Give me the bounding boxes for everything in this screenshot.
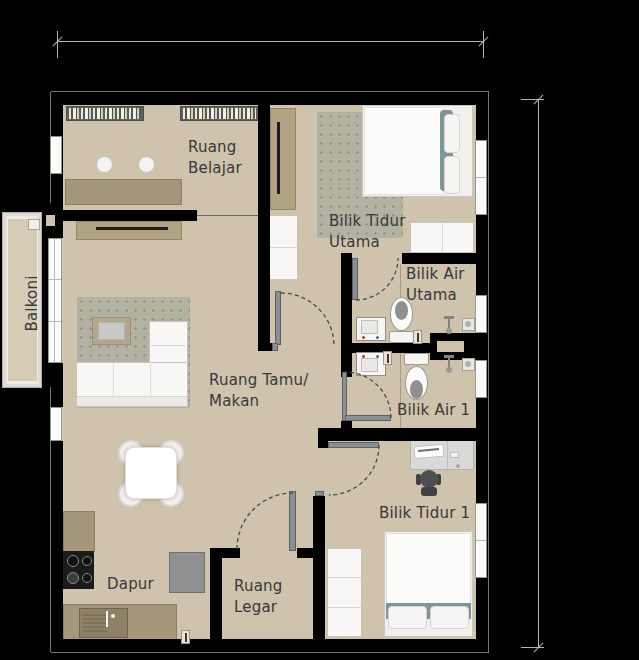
coffee-table-top (98, 322, 125, 340)
duct-shaft-inset (437, 341, 464, 352)
balcony-drain (28, 219, 40, 230)
bedroom1-door (328, 442, 379, 448)
pillow (444, 156, 460, 194)
balcony-sliding-door (48, 238, 62, 363)
burner-icon (67, 572, 79, 584)
label-line: Ruang Tamu/ (209, 370, 309, 391)
wall-study-south (61, 210, 197, 221)
room-label-study: Ruang Belajar (188, 137, 242, 179)
label-line: Utama (329, 232, 406, 253)
entrance-door (289, 491, 296, 551)
office-chair-back (421, 487, 437, 496)
tv-icon (277, 122, 280, 194)
label-line: Ruang (234, 576, 282, 597)
sink-basin (83, 612, 107, 634)
wall-bottom (51, 639, 488, 652)
pillow (388, 606, 427, 629)
room-label-bathroom1: Bilik Air 1 (397, 400, 470, 421)
study-desk (65, 179, 182, 205)
dimension-tick-right-top (521, 99, 544, 100)
wall-masterbath-north (402, 253, 476, 264)
room-label-master-bathroom: Bilik Air Utama (406, 264, 465, 306)
label-line: Belajar (188, 158, 242, 179)
valve-icon (413, 330, 422, 344)
label-line: Ruang (188, 137, 242, 158)
wall-stub (318, 428, 328, 448)
door-jamb (272, 343, 278, 351)
cold-tap-dot (376, 336, 379, 339)
pillar-inset (46, 215, 55, 226)
desk-dot (456, 464, 460, 468)
shower-head-icon (446, 328, 452, 334)
partition-line (197, 215, 259, 216)
wall-foyer-top (210, 548, 240, 558)
burner-icon (67, 555, 79, 567)
window-mullion (476, 540, 486, 541)
sofa-chaise-line (152, 345, 185, 346)
burner-icon (82, 556, 92, 566)
label-line: Utama (406, 285, 465, 306)
pillow (444, 114, 460, 153)
tv-console (76, 221, 182, 240)
wall-bath-west (341, 253, 352, 377)
sofa-seam (113, 364, 114, 397)
room-label-foyer: Ruang Legar (234, 576, 282, 618)
vanity-basin (361, 320, 378, 334)
wall-hallway (313, 496, 325, 643)
master-bath-door (352, 258, 358, 300)
sofa-seam (150, 364, 151, 397)
label-line: Bilik Air (406, 264, 465, 285)
stool (96, 156, 113, 173)
toilet-bowl-inner (410, 380, 423, 399)
wardrobe-seam (328, 577, 361, 578)
books (183, 108, 256, 119)
faucet-icon (106, 611, 108, 627)
wardrobe1 (327, 548, 362, 637)
wall-foyer-top (297, 548, 313, 558)
tv-icon (96, 227, 168, 230)
door-jamb (315, 491, 324, 496)
room-label-bedroom1: Bilik Tidur 1 (379, 503, 470, 524)
plan-outline (488, 92, 489, 653)
window-mullion (49, 321, 61, 322)
dimension-tick-top-left (57, 31, 58, 58)
office-chair-seat (420, 470, 438, 488)
master-bath-window (475, 295, 487, 333)
window-mullion (49, 279, 61, 280)
wall-bedroom1-north (318, 428, 476, 441)
bed1-mattress (386, 533, 471, 605)
cabinet-seam (268, 247, 297, 248)
wardrobe-seam (328, 607, 361, 608)
books (69, 108, 141, 119)
stool (138, 156, 155, 173)
wall-left (51, 363, 63, 407)
dimension-line-right (538, 99, 539, 648)
wall-study-east (258, 92, 270, 350)
label-line: Bilik Tidur (329, 211, 406, 232)
phone-icon (450, 452, 459, 458)
master-bedroom-door (275, 291, 281, 345)
bath1-door-jamb (342, 372, 347, 421)
wall-foyer-left (210, 548, 222, 643)
wardrobe-seam (442, 223, 443, 252)
hot-tap-dot (362, 355, 365, 358)
cold-tap-dot (376, 355, 379, 358)
toilet-tank (389, 331, 414, 343)
window-mullion (476, 177, 486, 178)
vanity-basin (361, 358, 378, 372)
door-stop-icon (181, 630, 190, 644)
room-label-kitchen: Dapur (107, 574, 154, 595)
master-bed-mattress (364, 107, 444, 195)
master-tv-console (270, 108, 296, 210)
plan-outline (51, 652, 489, 653)
kitchen-counter (63, 511, 95, 552)
accessory-dot (465, 321, 471, 327)
study-window (50, 136, 62, 174)
burner-icon (82, 573, 92, 583)
accessory-dot (465, 361, 471, 367)
shower-head-icon (446, 367, 452, 373)
kitchen-window (50, 407, 62, 441)
dimension-tick-top-right (483, 31, 484, 58)
pillow (430, 606, 469, 629)
fridge (169, 552, 205, 593)
toilet-tank (404, 353, 429, 365)
room-label-living-dining: Ruang Tamu/ Makan (209, 370, 309, 412)
bath1-door (345, 415, 391, 421)
hot-tap-dot (362, 336, 365, 339)
room-label-master-bedroom: Bilik Tidur Utama (329, 211, 406, 253)
sofa-back (77, 396, 187, 406)
label-line: Legar (234, 597, 282, 618)
window-mullion (54, 239, 55, 362)
dimension-line-top (57, 41, 484, 42)
desk-seam (447, 441, 448, 469)
wall-left (51, 441, 63, 652)
room-label-balcony: Balkoni (22, 244, 39, 364)
valve-icon (383, 351, 392, 365)
floor-plan: Ruang Belajar Bilik Tidur Utama Bilik Ai… (0, 0, 639, 660)
label-line: Makan (209, 391, 309, 412)
faucet-dot (111, 614, 115, 618)
dining-table (125, 447, 177, 499)
bath1-window (475, 360, 487, 398)
dimension-tick-right-bottom (521, 647, 544, 648)
